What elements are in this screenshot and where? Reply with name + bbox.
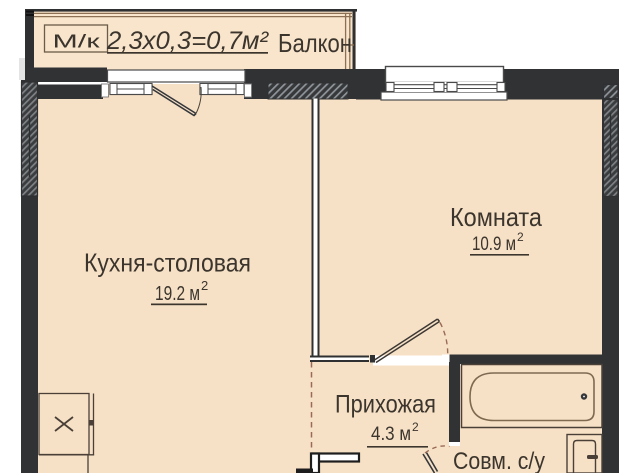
svg-text:4.3 м: 4.3 м [371,424,411,445]
svg-text:Комната: Комната [450,202,542,232]
svg-text:Балкон: Балкон [278,28,352,58]
svg-text:2: 2 [201,278,208,293]
svg-text:19.2 м: 19.2 м [155,283,200,305]
svg-text:М/к: М/к [53,32,100,52]
svg-text:2: 2 [412,420,419,434]
svg-text:Кухня-столовая: Кухня-столовая [84,248,251,278]
svg-text:Прихожая: Прихожая [335,391,436,419]
svg-text:2,3x0,3=0,7м²: 2,3x0,3=0,7м² [106,27,270,55]
svg-text:Совм. с/у: Совм. с/у [453,448,545,473]
svg-text:10.9 м: 10.9 м [472,234,516,255]
svg-text:2: 2 [517,230,524,244]
